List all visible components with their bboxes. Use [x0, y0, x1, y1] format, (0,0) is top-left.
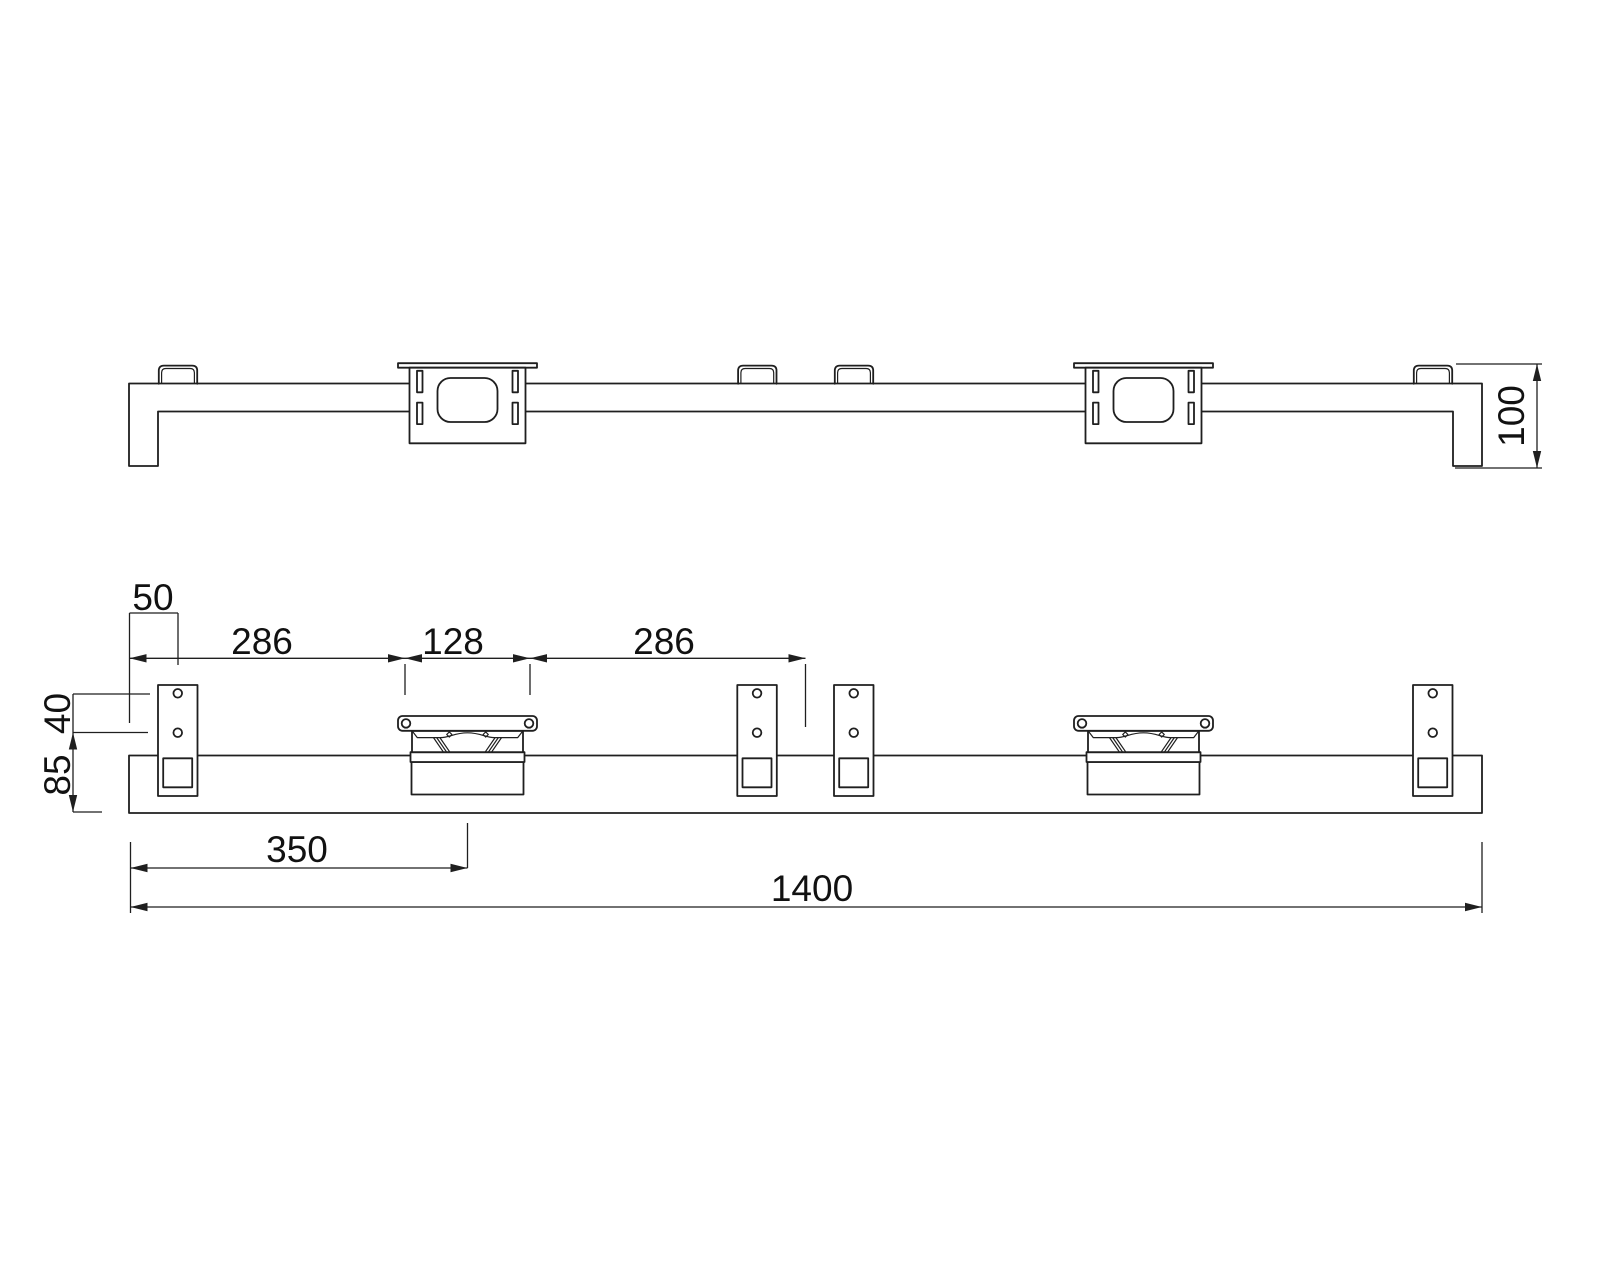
arrowhead-left [131, 864, 148, 872]
bracket-assembly-right [1074, 716, 1213, 795]
arrowhead-right [789, 654, 806, 662]
front-view: 50 286 128 286 [37, 577, 1482, 913]
drawing-canvas: 100 50 286 [0, 0, 1600, 1280]
dimension-label-100: 100 [1491, 385, 1532, 447]
dimension-hole-to-bottom: 85 [37, 733, 102, 813]
dimension-span-left: 286 [130, 621, 406, 663]
tab-plate-left [158, 685, 198, 796]
technical-drawing: 100 50 286 [0, 0, 1600, 1280]
dimension-bracket-center: 350 [131, 823, 468, 913]
arrowhead-right [1465, 903, 1482, 911]
dimension-label-286-left: 286 [231, 621, 293, 662]
beam-profile-top-view [129, 384, 1482, 467]
dimension-label-40: 40 [37, 693, 78, 734]
mid-clip-right [835, 366, 873, 384]
dimension-label-128: 128 [422, 621, 484, 662]
tab-plate-mid-right [834, 685, 874, 796]
arrowhead-left [530, 654, 547, 662]
dimension-label-286-right: 286 [633, 621, 695, 662]
beam-front [129, 756, 1482, 814]
mid-clip-left [738, 366, 776, 384]
arrowhead-right [513, 654, 530, 662]
top-view: 100 [129, 363, 1542, 468]
tab-plate-right [1413, 685, 1453, 796]
dimension-label-85: 85 [37, 754, 78, 795]
dimension-end-height: 100 [1455, 364, 1542, 468]
mounting-bracket-top-left [398, 363, 537, 443]
dimension-label-50: 50 [132, 577, 173, 618]
bracket-assembly-left [398, 716, 537, 795]
dimension-bracket-holes: 128 [405, 621, 530, 695]
dimension-overall-length: 1400 [131, 842, 1483, 913]
dimension-label-1400: 1400 [771, 868, 853, 909]
dimension-tab-hole-spacing: 40 [37, 693, 150, 734]
end-clip-left [159, 366, 197, 384]
end-clip-right [1414, 366, 1452, 384]
arrowhead-left [130, 654, 147, 662]
arrowhead-left [131, 903, 148, 911]
arrowhead-down [69, 795, 77, 812]
dimension-label-350: 350 [266, 829, 328, 870]
mounting-bracket-top-right [1074, 363, 1213, 443]
arrowhead-right [388, 654, 405, 662]
tab-plate-mid-left [737, 685, 777, 796]
arrowhead-down [1533, 451, 1541, 468]
arrowhead-up [1533, 364, 1541, 381]
arrowhead-left [405, 654, 422, 662]
arrowhead-right [451, 864, 468, 872]
